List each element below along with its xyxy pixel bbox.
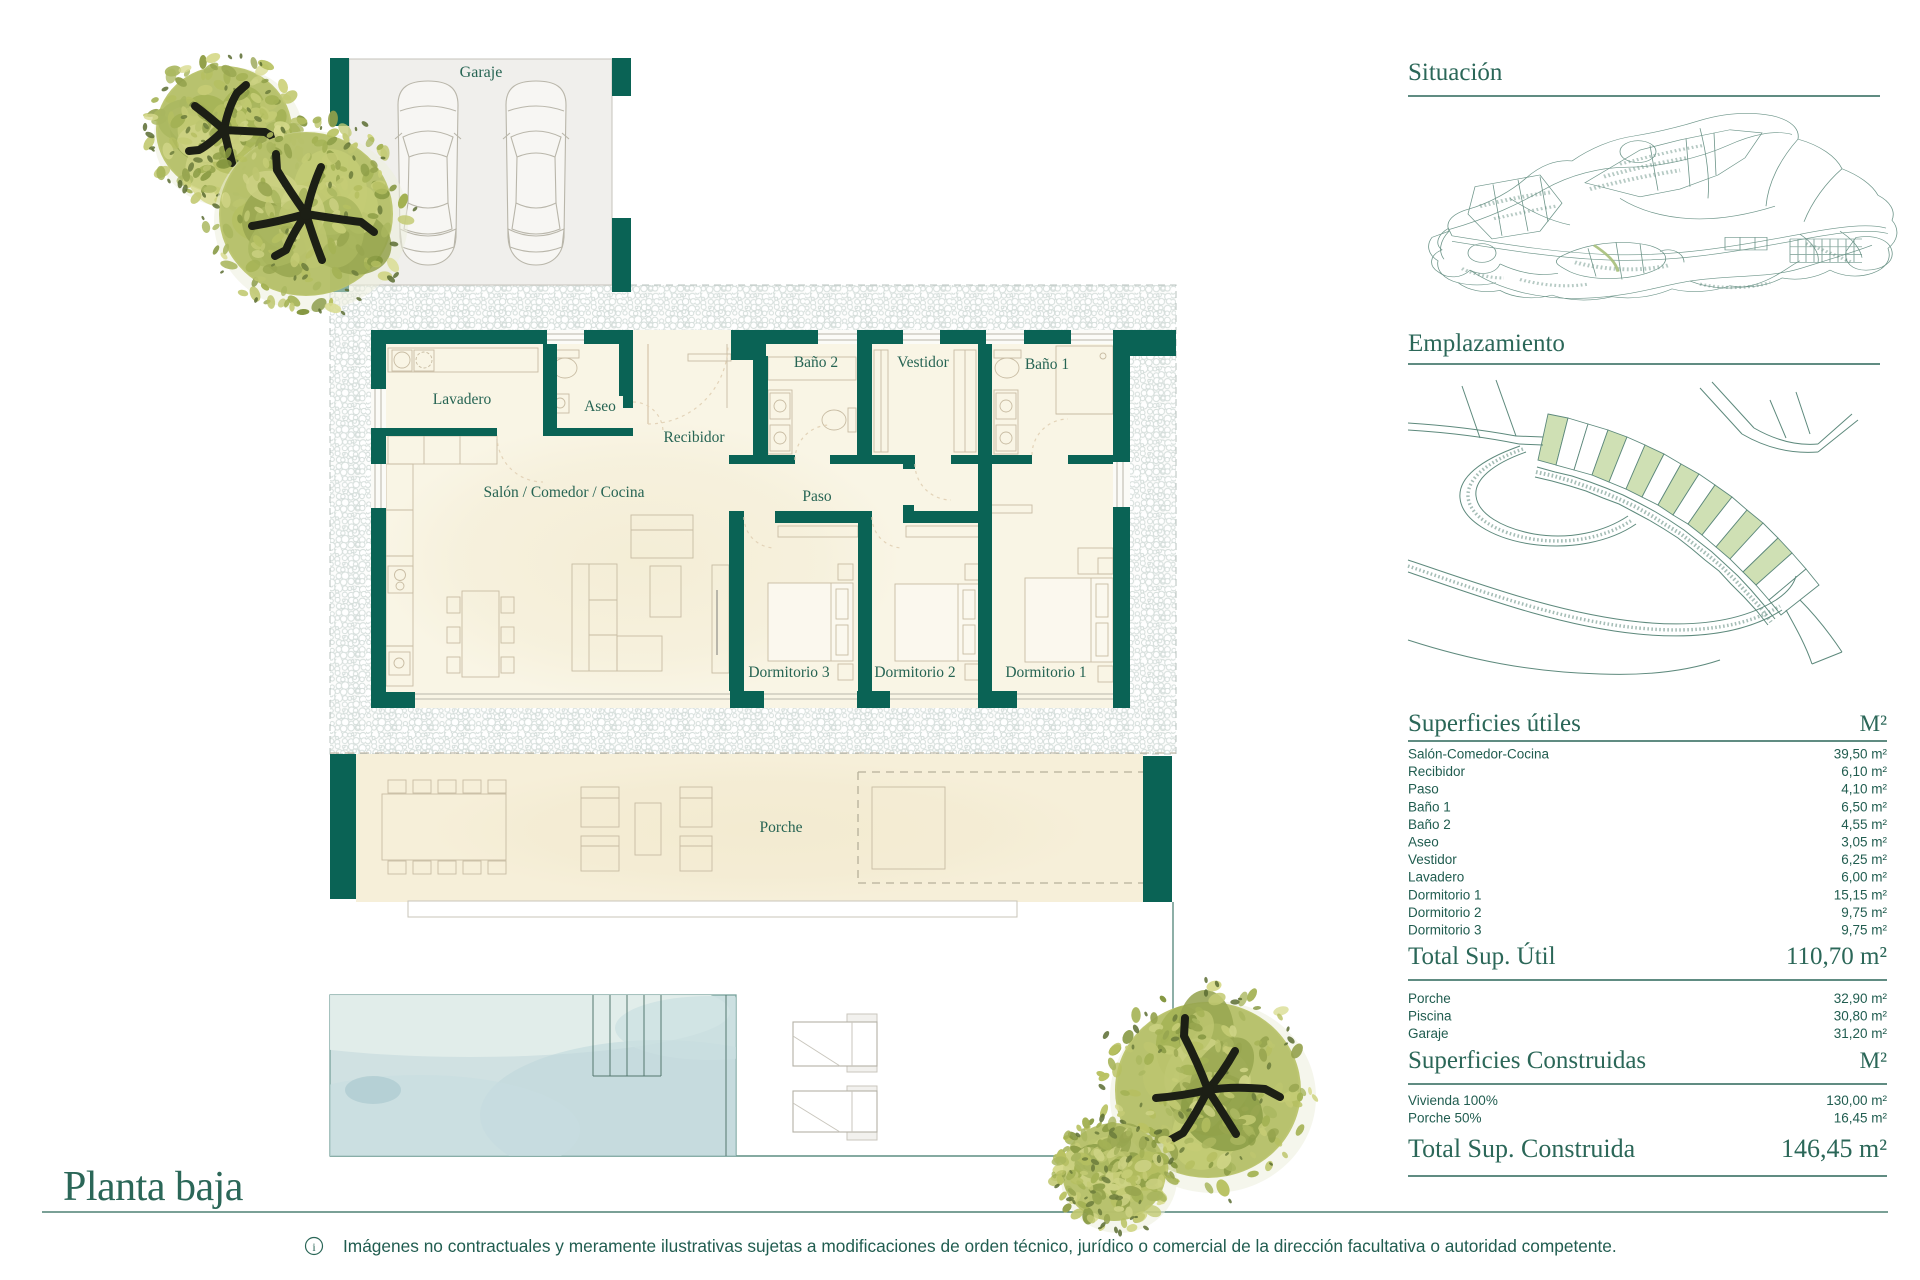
svg-text:Porche: Porche bbox=[759, 819, 802, 836]
svg-text:Aseo: Aseo bbox=[584, 398, 616, 415]
svg-text:6,25 m²: 6,25 m² bbox=[1841, 852, 1887, 867]
svg-text:Superficies útiles: Superficies útiles bbox=[1408, 710, 1581, 737]
svg-text:Imágenes no contractuales y me: Imágenes no contractuales y meramente il… bbox=[343, 1236, 1617, 1256]
svg-text:Baño 1: Baño 1 bbox=[1025, 356, 1069, 373]
svg-text:Paso: Paso bbox=[1408, 782, 1439, 797]
svg-text:Salón-Comedor-Cocina: Salón-Comedor-Cocina bbox=[1408, 747, 1550, 762]
svg-text:16,45 m²: 16,45 m² bbox=[1834, 1111, 1888, 1126]
svg-text:6,00 m²: 6,00 m² bbox=[1841, 870, 1887, 885]
svg-text:Dormitorio 1: Dormitorio 1 bbox=[1408, 887, 1482, 902]
svg-text:Porche: Porche bbox=[1408, 991, 1451, 1006]
svg-text:Salón / Comedor / Cocina: Salón / Comedor / Cocina bbox=[483, 484, 644, 501]
svg-text:Dormitorio 3: Dormitorio 3 bbox=[1408, 923, 1482, 938]
svg-text:Situación: Situación bbox=[1408, 59, 1503, 86]
svg-text:9,75 m²: 9,75 m² bbox=[1841, 923, 1887, 938]
svg-text:Total Sup. Útil: Total Sup. Útil bbox=[1408, 942, 1556, 970]
svg-text:Piscina: Piscina bbox=[1408, 1009, 1452, 1024]
svg-text:Dormitorio 1: Dormitorio 1 bbox=[1005, 664, 1086, 681]
svg-text:30,80 m²: 30,80 m² bbox=[1834, 1009, 1888, 1024]
svg-text:Vivienda 100%: Vivienda 100% bbox=[1408, 1093, 1498, 1108]
svg-text:31,20 m²: 31,20 m² bbox=[1834, 1026, 1888, 1041]
svg-text:Recibidor: Recibidor bbox=[1408, 764, 1466, 779]
svg-text:Paso: Paso bbox=[802, 488, 832, 505]
svg-text:39,50 m²: 39,50 m² bbox=[1834, 747, 1888, 762]
svg-text:Lavadero: Lavadero bbox=[433, 391, 492, 408]
svg-text:110,70 m²: 110,70 m² bbox=[1786, 943, 1887, 970]
svg-text:M²: M² bbox=[1860, 1048, 1887, 1073]
svg-text:Planta baja: Planta baja bbox=[63, 1164, 244, 1210]
svg-text:4,10 m²: 4,10 m² bbox=[1841, 782, 1887, 797]
svg-text:Total Sup. Construida: Total Sup. Construida bbox=[1408, 1134, 1636, 1163]
svg-text:Lavadero: Lavadero bbox=[1408, 870, 1464, 885]
svg-text:Emplazamiento: Emplazamiento bbox=[1408, 330, 1565, 357]
svg-text:Dormitorio 2: Dormitorio 2 bbox=[1408, 905, 1482, 920]
svg-text:9,75 m²: 9,75 m² bbox=[1841, 905, 1887, 920]
svg-text:Porche 50%: Porche 50% bbox=[1408, 1111, 1482, 1126]
svg-text:Aseo: Aseo bbox=[1408, 835, 1439, 850]
svg-text:Vestidor: Vestidor bbox=[1408, 852, 1457, 867]
svg-text:130,00 m²: 130,00 m² bbox=[1826, 1093, 1887, 1108]
svg-text:Baño 2: Baño 2 bbox=[794, 354, 838, 371]
svg-text:15,15 m²: 15,15 m² bbox=[1834, 887, 1888, 902]
svg-text:Garaje: Garaje bbox=[460, 64, 503, 81]
svg-text:Dormitorio 2: Dormitorio 2 bbox=[874, 664, 955, 681]
svg-text:3,05 m²: 3,05 m² bbox=[1841, 835, 1887, 850]
svg-text:4,55 m²: 4,55 m² bbox=[1841, 817, 1887, 832]
svg-text:M²: M² bbox=[1860, 711, 1887, 736]
svg-text:Baño 2: Baño 2 bbox=[1408, 817, 1451, 832]
svg-text:Vestidor: Vestidor bbox=[897, 354, 950, 371]
svg-text:Recibidor: Recibidor bbox=[663, 429, 725, 446]
svg-text:Garaje: Garaje bbox=[1408, 1026, 1449, 1041]
svg-text:6,10 m²: 6,10 m² bbox=[1841, 764, 1887, 779]
svg-text:6,50 m²: 6,50 m² bbox=[1841, 799, 1887, 814]
svg-text:Dormitorio 3: Dormitorio 3 bbox=[748, 664, 830, 681]
svg-text:Superficies Construidas: Superficies Construidas bbox=[1408, 1047, 1646, 1074]
svg-text:Baño 1: Baño 1 bbox=[1408, 799, 1451, 814]
svg-text:146,45 m²: 146,45 m² bbox=[1781, 1134, 1887, 1163]
svg-text:32,90 m²: 32,90 m² bbox=[1834, 991, 1888, 1006]
